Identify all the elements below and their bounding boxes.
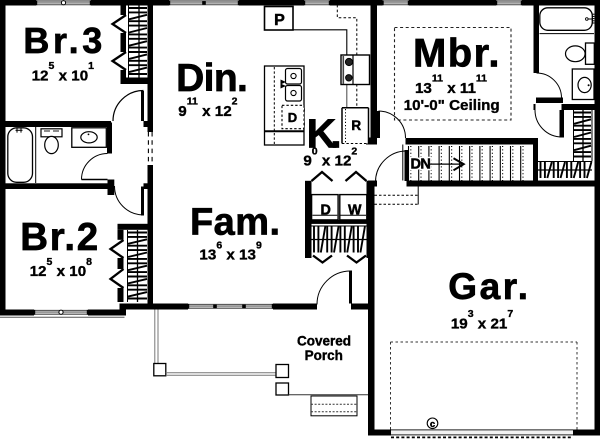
svg-text:Porch: Porch: [305, 348, 343, 363]
svg-text:Fam.: Fam.: [190, 202, 280, 244]
svg-text:Br.2: Br.2: [20, 216, 98, 259]
svg-text:P: P: [274, 12, 285, 29]
svg-text:DN: DN: [411, 157, 431, 173]
svg-text:D: D: [321, 203, 331, 219]
svg-text:Din.: Din.: [176, 57, 248, 100]
svg-text:D: D: [288, 110, 297, 125]
svg-text:Br.3: Br.3: [23, 20, 102, 61]
svg-text:10'-0" Ceiling: 10'-0" Ceiling: [404, 97, 500, 114]
svg-text:Mbr.: Mbr.: [413, 32, 500, 76]
svg-text:W: W: [348, 203, 362, 219]
svg-text:c: c: [430, 419, 435, 430]
svg-text:R: R: [351, 118, 361, 133]
svg-text:Covered: Covered: [297, 333, 351, 348]
